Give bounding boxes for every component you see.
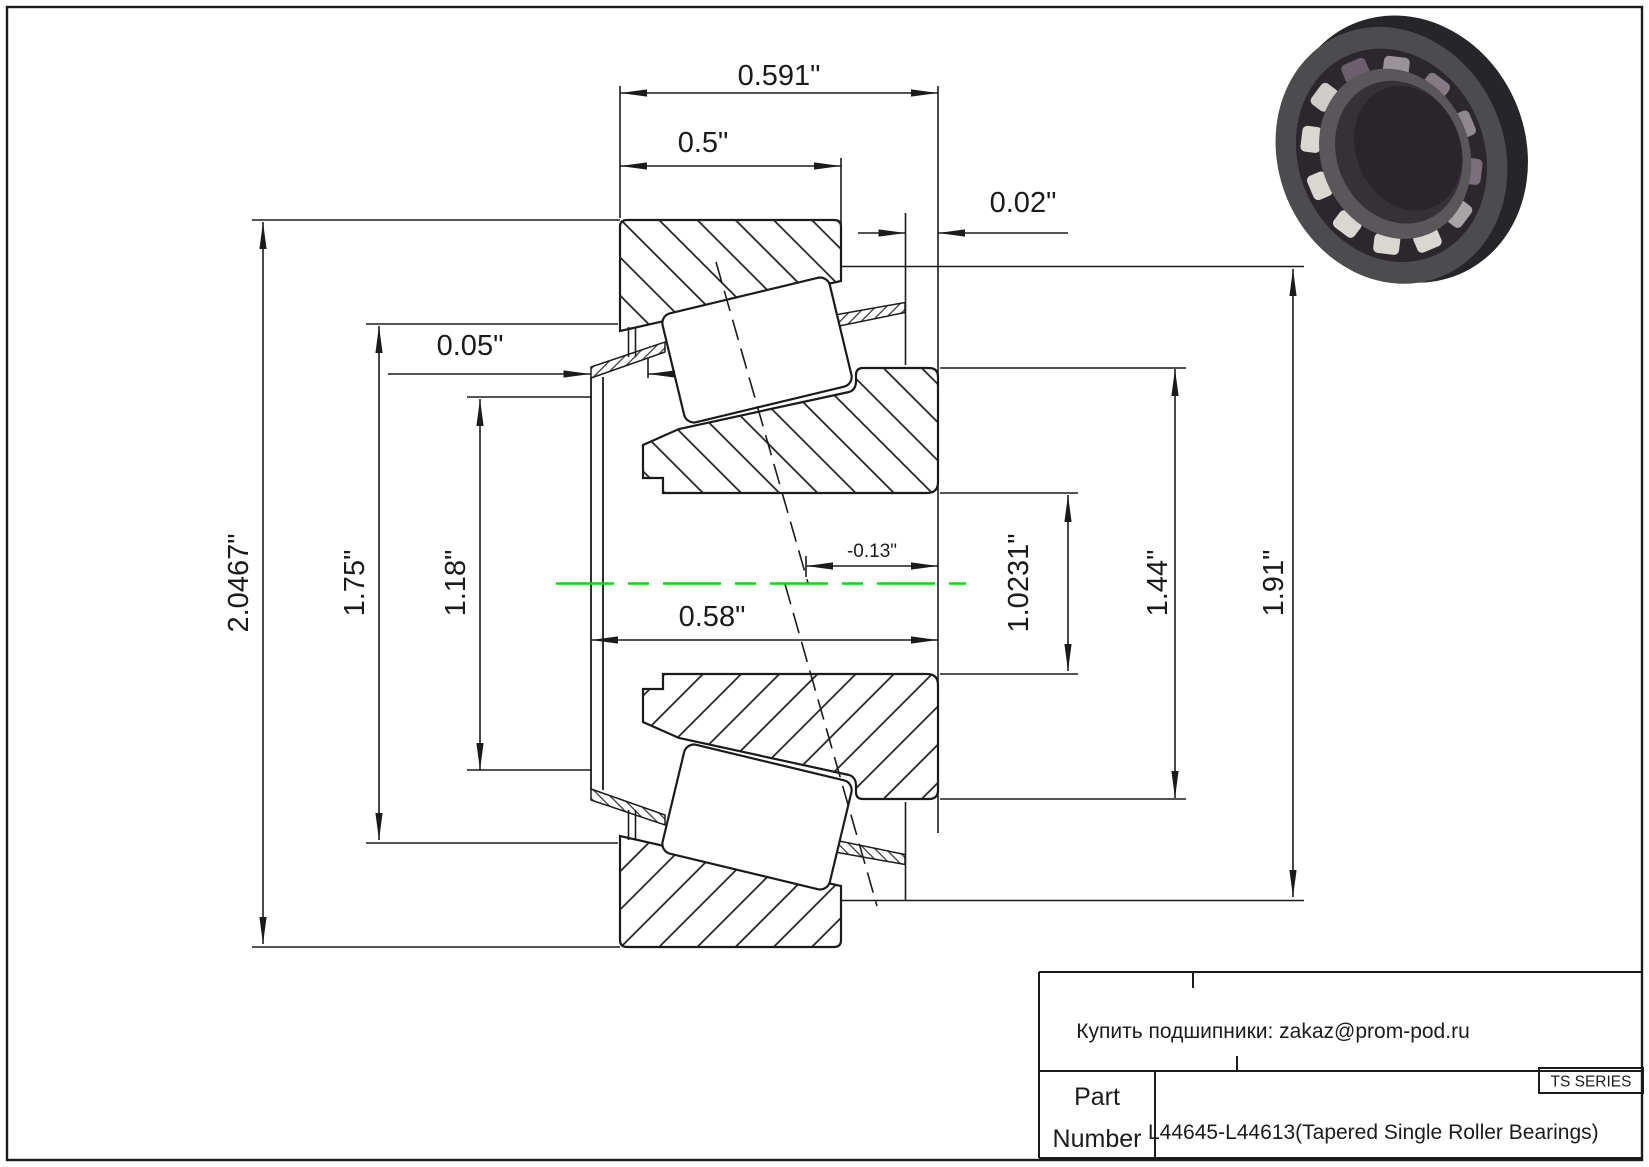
technical-drawing: 0.591" 0.5" 0.02" 0.05" -0.13" 0.58" 2.0… xyxy=(0,0,1649,1167)
dim-flange-od: 2.0467" xyxy=(223,534,255,633)
dim-effective-center: -0.13" xyxy=(847,541,897,562)
dim-flange-pilot-od: 1.75" xyxy=(339,550,371,617)
dim-cup-standout: 0.02" xyxy=(990,187,1057,219)
dim-total-width: 0.591" xyxy=(738,60,821,92)
drawing-page: 0.591" 0.5" 0.02" 0.05" -0.13" 0.58" 2.0… xyxy=(0,0,1649,1167)
dim-cup-od: 1.91" xyxy=(1258,550,1290,617)
part-label-line1: Part xyxy=(1074,1083,1120,1111)
contact-text: Купить подшипники: zakaz@prom-pod.ru xyxy=(1076,1020,1470,1043)
part-label-line2: Number xyxy=(1053,1125,1142,1153)
dim-cage-clearance: 0.05" xyxy=(437,330,504,362)
dim-cage-od: 1.18" xyxy=(440,550,472,617)
series-label: TS SERIES xyxy=(1551,1074,1632,1091)
dim-cone-rib-od: 1.44" xyxy=(1142,550,1174,617)
cage-right-strip xyxy=(832,303,905,328)
bearing-section-half xyxy=(252,220,1304,584)
dim-bearing-width: 0.58" xyxy=(679,601,746,633)
bearing-photo xyxy=(1234,0,1569,325)
part-number-text: L44645-L44613(Tapered Single Roller Bear… xyxy=(1148,1121,1599,1144)
bearing-section-mirror xyxy=(252,583,1304,947)
dim-cup-width: 0.5" xyxy=(678,127,729,159)
dim-bore-diameter: 1.0231" xyxy=(1003,534,1035,633)
title-block-text: Купить подшипники: zakaz@prom-pod.ru TS … xyxy=(1053,1020,1632,1153)
